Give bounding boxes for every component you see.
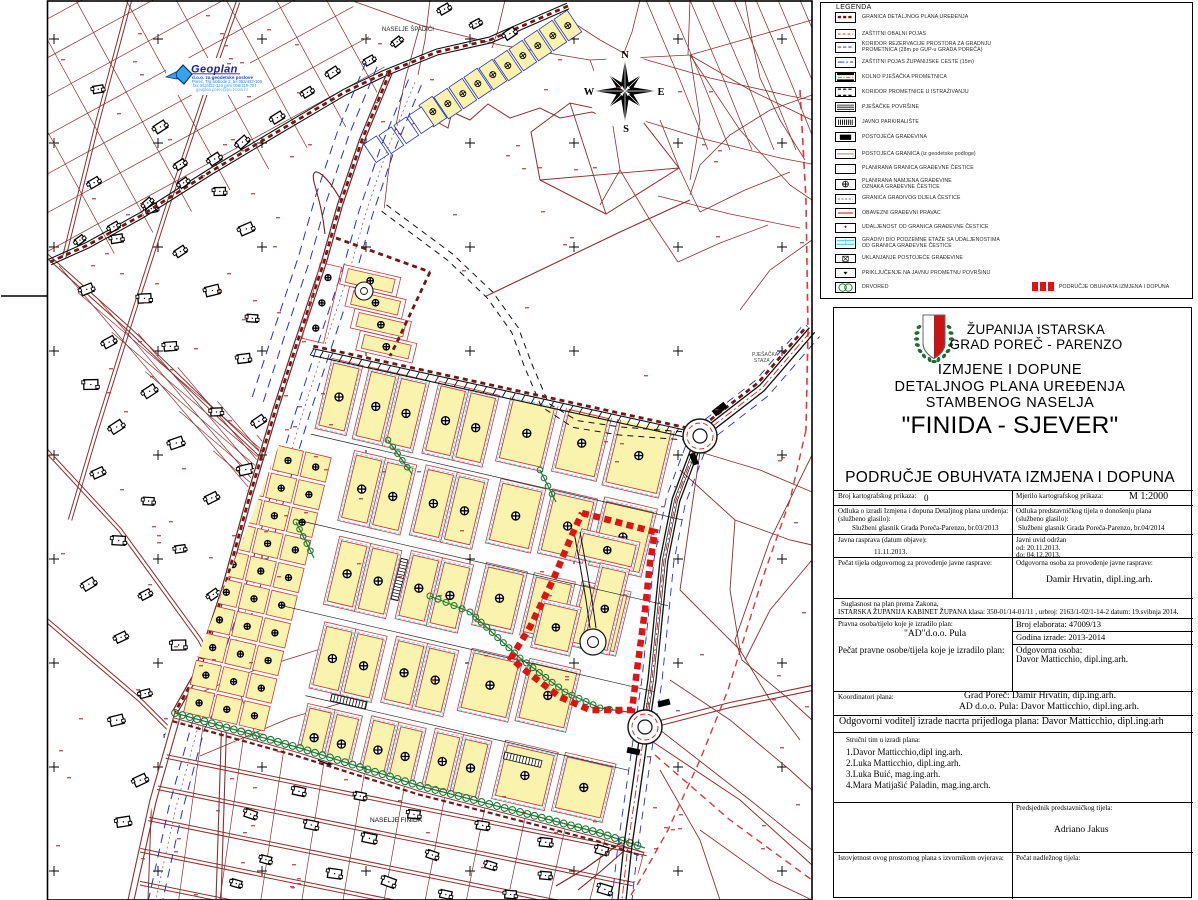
svg-text:W: W [584, 87, 595, 98]
svg-text:NASELJE FINIDA: NASELJE FINIDA [370, 817, 423, 824]
svg-text:S: S [623, 124, 629, 135]
svg-text:geoplan.porec@pu.t-com.hr: geoplan.porec@pu.t-com.hr [196, 87, 249, 92]
svg-text:STAZA: STAZA [754, 358, 770, 364]
svg-text:PJEŠAČKA: PJEŠAČKA [752, 351, 779, 358]
svg-text:NASELJE ŠPADIĆI: NASELJE ŠPADIĆI [382, 26, 434, 33]
svg-text:E: E [657, 87, 664, 98]
svg-text:N: N [621, 50, 629, 61]
